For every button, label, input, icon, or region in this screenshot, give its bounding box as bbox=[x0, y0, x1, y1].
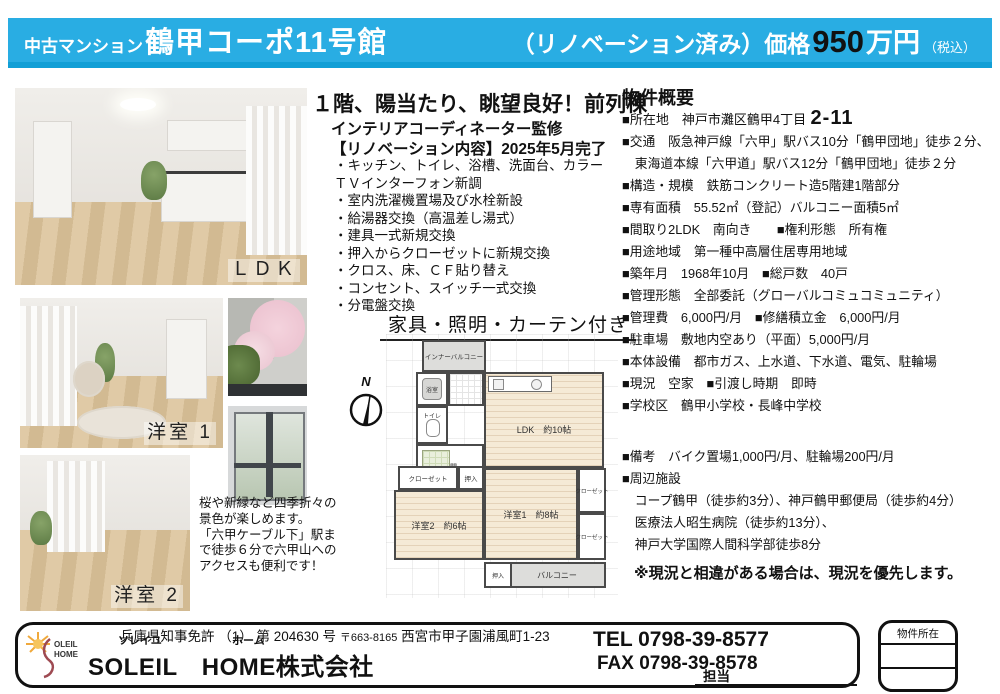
overview-row: ■築年月 1968年10月 ■総戸数 40戸 bbox=[622, 263, 1000, 285]
overview-row: ■専有面積 55.52㎡（登記）バルコニー面積5㎡ bbox=[622, 197, 1000, 219]
fp-closet-left-label: クローゼット bbox=[409, 473, 448, 483]
overview-row: ■間取り2LDK 南向き ■権利形態 所有権 bbox=[622, 219, 1000, 241]
curtain bbox=[246, 106, 307, 256]
renovation-item: ・押入からクローゼットに新規交換 bbox=[334, 245, 603, 263]
price-unit: 万円 bbox=[866, 21, 920, 60]
view-note-line: アクセスも便利です！ bbox=[199, 559, 337, 575]
svg-text:HOME: HOME bbox=[54, 650, 79, 659]
supervision-note: インテリアコーディネーター監修 bbox=[331, 117, 562, 139]
fp-room1: 洋室1 約8帖 bbox=[484, 468, 578, 560]
price-group: （リノベーション済み）価格 950 万円 （税込） bbox=[512, 21, 976, 60]
fp-oshiire-bottom: 押入 bbox=[484, 562, 512, 588]
overview-row: ■構造・規模 鉄筋コンクリート造5階建1階部分 bbox=[622, 175, 1000, 197]
furigana-home: ホーム bbox=[232, 632, 265, 648]
office-address: 西宮市甲子園浦風町1-23 bbox=[401, 629, 550, 644]
fp-oshiire-left-label: 押入 bbox=[465, 473, 478, 483]
compass-n-label: N bbox=[344, 374, 388, 389]
door bbox=[166, 319, 207, 399]
fp-bath-label: 浴室 bbox=[426, 385, 438, 394]
photo-room1: 洋室 1 bbox=[20, 298, 223, 448]
curtain bbox=[20, 306, 77, 426]
phone-number: TEL 0798-39-8577 bbox=[593, 628, 769, 652]
headline: １階、陽当たり、眺望良好！前列棟 bbox=[312, 88, 647, 118]
renovation-item: ・キッチン、トイレ、浴槽、洗面台、カラー bbox=[334, 157, 603, 175]
view-note: 桜や新緑など四季折々の景色が楽しめます。「六甲ケーブル下」駅まで徒歩６分で六甲山… bbox=[199, 496, 337, 575]
photo-label-room1: 洋室 1 bbox=[144, 422, 216, 445]
overview-rows-a: ■交通 阪急神戸線「六甲」駅バス10分「鶴甲団地」徒歩２分、 東海道本線「六甲道… bbox=[622, 131, 1000, 417]
overview-rows-b: ■備考 バイク置場1,000円/月、駐輪場200円/月■周辺施設 コープ鶴甲（徒… bbox=[622, 446, 1000, 556]
svg-text:OLEIL: OLEIL bbox=[54, 640, 78, 649]
staff-label: 担当 bbox=[703, 665, 730, 685]
overview-row: ■備考 バイク置場1,000円/月、駐輪場200円/月 bbox=[622, 446, 1000, 468]
stove-icon bbox=[493, 379, 504, 390]
fp-balcony: 押入 バルコニー bbox=[484, 562, 606, 588]
fp-closet-left: クローゼット bbox=[398, 466, 458, 490]
fp-toilet: トイレ bbox=[416, 406, 448, 444]
fp-closet-right2: クローゼット bbox=[578, 513, 606, 560]
address-number: 2-11 bbox=[811, 107, 854, 129]
overview-row: ■本体設備 都市ガス、上水道、下水道、電気、駐輪場 bbox=[622, 351, 1000, 373]
property-category: 中古マンション bbox=[24, 32, 143, 57]
fp-washroom bbox=[448, 372, 484, 406]
overview-row: ■現況 空家 ■引渡し時期 即時 bbox=[622, 373, 1000, 395]
renovation-item: ・給湯器交換（高温差し湯式） bbox=[334, 210, 603, 228]
plant bbox=[141, 161, 167, 200]
soleil-home-logo: OLEIL HOME bbox=[24, 631, 84, 685]
kitchen-upper-cabinet bbox=[167, 120, 248, 152]
view-note-line: 「六甲ケーブル下」駅ま bbox=[199, 528, 337, 544]
photo-label-ldk: ＬＤＫ bbox=[228, 259, 300, 282]
header-band: 中古マンション 鶴甲コーポ11号館 （リノベーション済み）価格 950 万円 （… bbox=[8, 18, 992, 68]
renovated-price-label: （リノベーション済み）価格 bbox=[512, 25, 811, 59]
price-value: 950 bbox=[812, 24, 864, 60]
fp-oshiire-left: 押入 bbox=[458, 466, 484, 490]
plant bbox=[30, 511, 52, 545]
overview-row: ■駐車場 敷地内空あり（平面）5,000円/月 bbox=[622, 329, 1000, 351]
renovation-title: 【リノベーション内容】2025年5月完了 bbox=[331, 137, 606, 159]
renovation-item: ・室内洗濯機置場及び水栓新設 bbox=[334, 192, 603, 210]
overview-row: ■交通 阪急神戸線「六甲」駅バス10分「鶴甲団地」徒歩２分、 bbox=[622, 131, 1000, 153]
fp-kitchen-counter bbox=[488, 376, 552, 392]
view-note-line: で徒歩６分で六甲山への bbox=[199, 543, 337, 559]
tax-included-label: （税込） bbox=[924, 37, 976, 56]
view-note-line: 桜や新緑など四季折々の bbox=[199, 496, 337, 512]
renovation-item: ＴＶインターフォン新調 bbox=[334, 175, 603, 193]
overview-row: ■用途地域 第一種中高層住居専用地域 bbox=[622, 241, 1000, 263]
fp-ldk-label: LDK 約10帖 bbox=[517, 423, 572, 436]
chair bbox=[73, 361, 105, 397]
photo-blossom-view bbox=[228, 298, 307, 396]
curtain bbox=[47, 461, 105, 551]
overview-row: ■管理費 6,000円/月 ■修繕積立金 6,000円/月 bbox=[622, 307, 1000, 329]
window-bar bbox=[234, 463, 300, 468]
floor-plan: インナーバルコニー 浴室 LDK 約10帖 トイレ 玄関 クローゼット 押入 bbox=[386, 334, 618, 598]
compass: N bbox=[344, 374, 388, 434]
renovation-item: ・建具一式新規交換 bbox=[334, 227, 603, 245]
overview-row: 医療法人昭生病院（徒歩約13分）、 bbox=[622, 512, 1000, 534]
overview-address: ■所在地 神戸市灘区鶴甲4丁目 2-11 bbox=[622, 107, 853, 130]
fax-number: FAX 0798-39-8578 bbox=[597, 653, 758, 675]
photo-room2: 洋室 2 bbox=[20, 455, 190, 611]
photo-label-room2: 洋室 2 bbox=[111, 585, 183, 608]
renovation-items: ・キッチン、トイレ、浴槽、洗面台、カラーＴＶインターフォン新調・室内洗濯機置場及… bbox=[334, 157, 603, 315]
staff-underline bbox=[695, 684, 857, 686]
view-note-line: 景色が楽しめます。 bbox=[199, 512, 337, 528]
compass-icon bbox=[344, 389, 388, 433]
flyer-page: 中古マンション 鶴甲コーポ11号館 （リノベーション済み）価格 950 万円 （… bbox=[0, 0, 1000, 694]
address-label: ■所在地 神戸市灘区鶴甲4丁目 bbox=[622, 112, 806, 127]
kitchen-counter bbox=[161, 171, 254, 222]
overview-disclaimer: ※現況と相違がある場合は、現況を優先します。 bbox=[634, 562, 962, 583]
fp-toilet-label: トイレ bbox=[423, 411, 441, 420]
overview-row: 東海道本線「六甲道」駅バス12分「鶴甲団地」徒歩２分 bbox=[622, 153, 1000, 175]
property-location-label: 物件所在 bbox=[881, 626, 955, 641]
company-name: SOLEIL HOME株式会社 bbox=[88, 647, 374, 682]
furigana-soleil: ソレイユ bbox=[118, 632, 162, 648]
fp-oshiire-bottom-label: 押入 bbox=[492, 571, 504, 580]
divider-line bbox=[881, 643, 955, 645]
renovation-item: ・コンセント、スイッチ一式交換 bbox=[334, 280, 603, 298]
fp-inner-balcony-label: インナーバルコニー bbox=[425, 351, 483, 361]
sink-icon bbox=[531, 379, 542, 390]
fp-ldk: LDK 約10帖 bbox=[484, 372, 604, 468]
fp-closet-right1: クローゼット bbox=[578, 468, 606, 513]
fp-room1-label: 洋室1 約8帖 bbox=[503, 508, 558, 521]
overview-row: コープ鶴甲（徒歩約3分）、神戸鶴甲郵便局（徒歩約4分） bbox=[622, 490, 1000, 512]
license-line: 兵庫県知事免許 （1） 第 204630 号 〒663-8165 西宮市甲子園浦… bbox=[120, 625, 550, 645]
overview-row: ■学校区 鶴甲小学校・長峰中学校 bbox=[622, 395, 1000, 417]
fp-closet-right2-label: クローゼット bbox=[576, 533, 609, 541]
ceiling-light bbox=[120, 98, 156, 111]
fp-room2: 洋室2 約6帖 bbox=[394, 490, 484, 560]
window-bar bbox=[266, 412, 273, 497]
building-name: 鶴甲コーポ11号館 bbox=[145, 19, 388, 61]
overview-row: 神戸大学国際人間科学部徒歩8分 bbox=[622, 534, 1000, 556]
fp-inner-balcony: インナーバルコニー bbox=[422, 340, 486, 372]
postal-code: 〒663-8165 bbox=[340, 632, 398, 644]
property-title: 中古マンション 鶴甲コーポ11号館 bbox=[24, 19, 388, 61]
overview-row: ■周辺施設 bbox=[622, 468, 1000, 490]
fp-closet-right1-label: クローゼット bbox=[576, 487, 609, 495]
balcony-rail bbox=[228, 384, 307, 396]
fp-balcony-label: バルコニー bbox=[537, 570, 577, 581]
photo-window-view bbox=[228, 406, 307, 505]
overview-row: ■管理形態 全部委託（グローバルコミュコミュニティ） bbox=[622, 285, 1000, 307]
property-location-box: 物件所在 bbox=[878, 620, 958, 692]
door bbox=[33, 121, 73, 218]
renovation-item: ・クロス、床、ＣＦ貼り替え bbox=[334, 262, 603, 280]
toilet-icon bbox=[426, 419, 440, 437]
fp-room2-label: 洋室2 約6帖 bbox=[411, 519, 466, 532]
photo-ldk: ＬＤＫ bbox=[15, 88, 307, 285]
divider-line bbox=[881, 667, 955, 669]
fp-bath: 浴室 bbox=[416, 372, 448, 406]
foliage bbox=[228, 345, 260, 386]
